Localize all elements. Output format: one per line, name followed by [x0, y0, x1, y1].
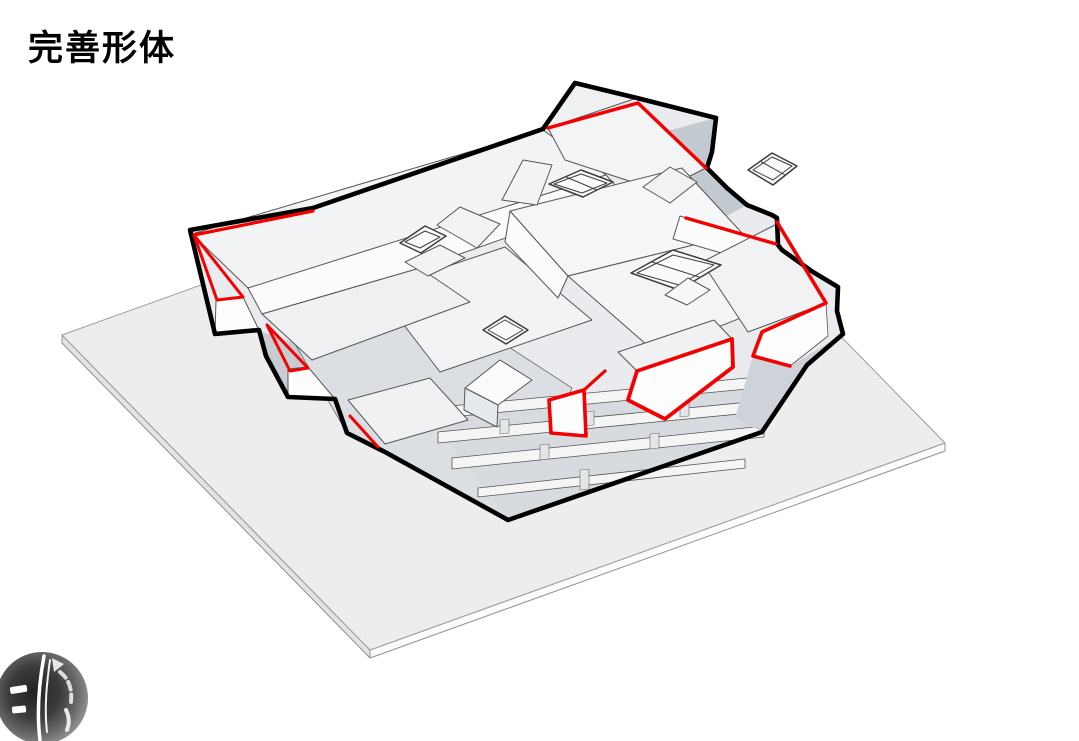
- studio-seal-logo: [0, 650, 94, 741]
- slab-fin: [500, 419, 509, 434]
- slab-fin: [540, 444, 549, 460]
- slab-fin: [650, 433, 659, 449]
- slab-fin: [580, 469, 589, 490]
- axonometric-massing-diagram: [0, 0, 1079, 741]
- slide: 完善形体: [0, 0, 1079, 741]
